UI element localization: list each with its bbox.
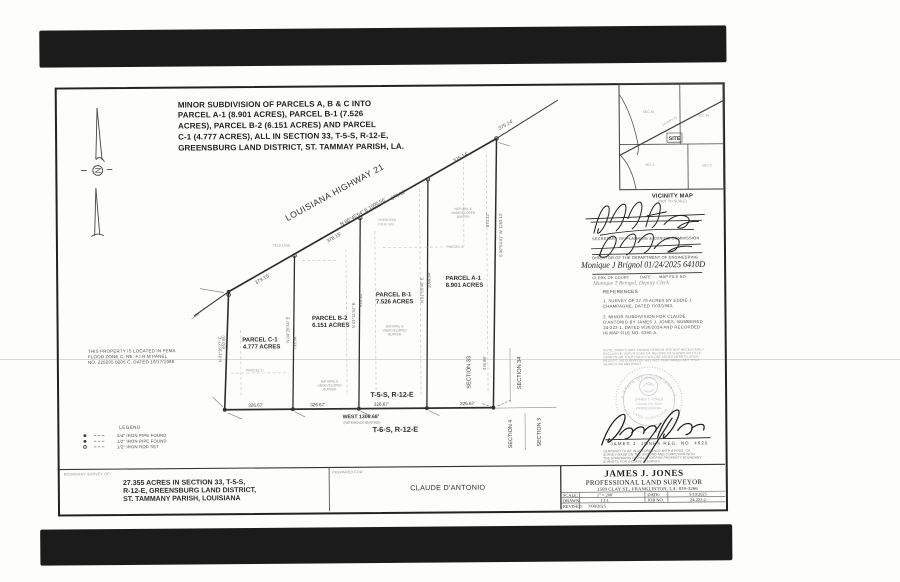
svg-text:T-6-S, R-12-E: T-6-S, R-12-E [373,425,419,434]
svg-text:SECTION 33: SECTION 33 [466,356,472,389]
svg-text:1/2" IRON PIPE FOUND: 1/2" IRON PIPE FOUND [117,438,167,443]
svg-text:JAMES J. JONES REG. NO. 4625: JAMES J. JONES REG. NO. 4625 [610,440,708,446]
svg-text:378.12': 378.12' [390,189,407,202]
svg-text:1/2" IRON ROD SET: 1/2" IRON ROD SET [117,444,159,449]
svg-text:SITE: SITE [669,136,681,142]
svg-text:378.15': 378.15' [326,231,343,244]
svg-text:PROFESSIONAL: PROFESSIONAL [636,406,662,410]
svg-text:Monique T Bringol, Deputy Cler: Monique T Bringol, Deputy Clerk [592,280,669,287]
svg-text:N 04°26'34" E: N 04°26'34" E [285,316,290,342]
svg-text:SECTION 4: SECTION 4 [508,420,514,449]
svg-text:SEC 4: SEC 4 [645,163,654,167]
svg-text:SEC 3: SEC 3 [702,163,711,167]
svg-text:SEC 34: SEC 34 [698,113,709,117]
svg-text:MAP FILE NO: MAP FILE NO [659,275,686,279]
svg-text:7/08/2025: 7/08/2025 [588,504,607,509]
svg-text:CHAMPAGNE, DATED 7/03/1963.: CHAMPAGNE, DATED 7/03/1963. [603,303,674,309]
svg-text:650.65': 650.65' [221,335,226,349]
svg-text:326.67': 326.67' [310,402,325,407]
svg-text:326.67': 326.67' [460,401,475,406]
svg-text:DATE:: DATE: [647,492,659,497]
svg-text:SCALE:: SCALE: [563,493,578,498]
svg-text:SECRETARY OF PLANNING & ZONING: SECRETARY OF PLANNING & ZONING COMMISSIO… [592,235,700,241]
svg-text:S 00°54'41" W 1283.12': S 00°54'41" W 1283.12' [498,213,503,257]
svg-text:LEGEND: LEGEND [119,425,141,430]
svg-text:WEST 1306.68': WEST 1306.68' [343,414,379,420]
svg-text:JAMES J. JONES: JAMES J. JONES [604,468,683,479]
svg-text:375.14': 375.14' [452,151,469,164]
svg-text:PARCEL B-2: PARCEL B-2 [312,316,348,322]
svg-text:REFERENCES: REFERENCES [603,289,638,294]
svg-text:PARCEL A-1: PARCEL A-1 [446,276,482,282]
svg-text:REVISED:: REVISED: [563,504,583,509]
svg-text:BOUNDARY SURVEY OF:: BOUNDARY SURVEY OF: [64,472,111,476]
svg-text:27.355 ACRES IN SECTION 33, T-: 27.355 ACRES IN SECTION 33, T-5-S, [123,479,245,487]
svg-text:BUFFER: BUFFER [323,387,336,391]
svg-text:R-12-E, GREENSBURG LAND DISTRI: R-12-E, GREENSBURG LAND DISTRICT, [123,487,256,495]
svg-text:LA HWY 21: LA HWY 21 [662,115,679,126]
svg-text:BUFFER: BUFFER [457,215,470,219]
svg-text:733.38': 733.38' [292,336,297,350]
svg-text:24-223-2: 24-223-2 [690,497,706,502]
svg-text:N 01°11'41" E: N 01°11'41" E [351,302,356,328]
svg-text:326.67': 326.67' [248,403,263,408]
svg-text:NO. 225205 0205 C, DATED 10/17: NO. 225205 0205 C, DATED 10/17/1988 [88,359,175,365]
svg-text:PARCEL C: PARCEL C [246,368,264,372]
svg-text:7.526 ACRES: 7.526 ACRES [376,299,414,305]
svg-text:SEARCH OR ABSTRACT.: SEARCH OR ABSTRACT. [603,362,642,366]
svg-text:P.O.B. U/G: P.O.B. U/G [378,222,394,226]
svg-text:5/19/2025: 5/19/2025 [689,492,708,497]
svg-text:PARCEL A: PARCEL A [446,245,464,249]
svg-text:JOB NO.: JOB NO. [647,497,663,502]
svg-text:J.J.J.: J.J.J. [601,498,609,503]
svg-text:DRAWN:: DRAWN: [563,498,580,503]
svg-text:SECTION 34: SECTION 34 [517,357,523,390]
svg-text:IN MAP FILE NO. 6390-A.: IN MAP FILE NO. 6390-A. [603,330,658,335]
svg-text:N: N [93,168,102,174]
svg-text:TELE LINE: TELE LINE [272,244,291,248]
svg-text:SECTION 3: SECTION 3 [537,418,543,447]
svg-text:ST. TAMMANY PARISH, LOUISIANA: ST. TAMMANY PARISH, LOUISIANA [123,495,241,503]
svg-text:8.901 ACRES: 8.901 ACRES [446,283,484,289]
svg-text:1" = 200': 1" = 200' [597,492,613,497]
svg-text:SEC 33: SEC 33 [643,110,654,114]
svg-text:916.36': 916.36' [358,293,363,307]
svg-text:PARCEL B-1: PARCEL B-1 [376,292,412,298]
svg-text:LOUISIANA HIGHWAY 21: LOUISIANA HIGHWAY 21 [284,161,386,223]
svg-text:✳: ✳ [673,393,677,398]
svg-text:326.67': 326.67' [374,402,389,407]
svg-text:Monique J Brignol 01/24/2025: Monique J Brignol 01/24/2025 6410D [580,259,705,270]
svg-text:375.14': 375.14' [497,119,514,132]
svg-text:SURVEYS FOR A CLASS C SURVEY.: SURVEYS FOR A CLASS C SURVEY. [603,459,661,463]
svg-text:DATE: DATE [640,275,651,279]
svg-text:(NOT TO SCALE): (NOT TO SCALE) [658,199,687,203]
svg-text:CLAUDE D'ANTONIO: CLAUDE D'ANTONIO [410,483,485,493]
svg-text:N 01°55'46" E: N 01°55'46" E [419,277,424,303]
svg-text:CLERK OF COURT: CLERK OF COURT [592,276,629,280]
svg-text:1099.84': 1099.84' [426,272,431,288]
svg-text:476.99': 476.99' [482,356,487,370]
svg-text:6.151 ACRES: 6.151 ACRES [312,323,350,329]
svg-text:4.777 ACRES: 4.777 ACRES [243,344,281,350]
svg-text:T-5-S, R-12-E: T-5-S, R-12-E [370,392,414,399]
svg-text:BUFFER: BUFFER [388,332,401,336]
svg-text:PREPARED FOR:: PREPARED FOR: [332,470,364,474]
svg-text:PARCEL C-1: PARCEL C-1 [242,337,278,343]
svg-text:3/4" IRON PIPE FOUND: 3/4" IRON PIPE FOUND [117,433,167,438]
svg-text:873.12': 873.12' [485,213,490,227]
